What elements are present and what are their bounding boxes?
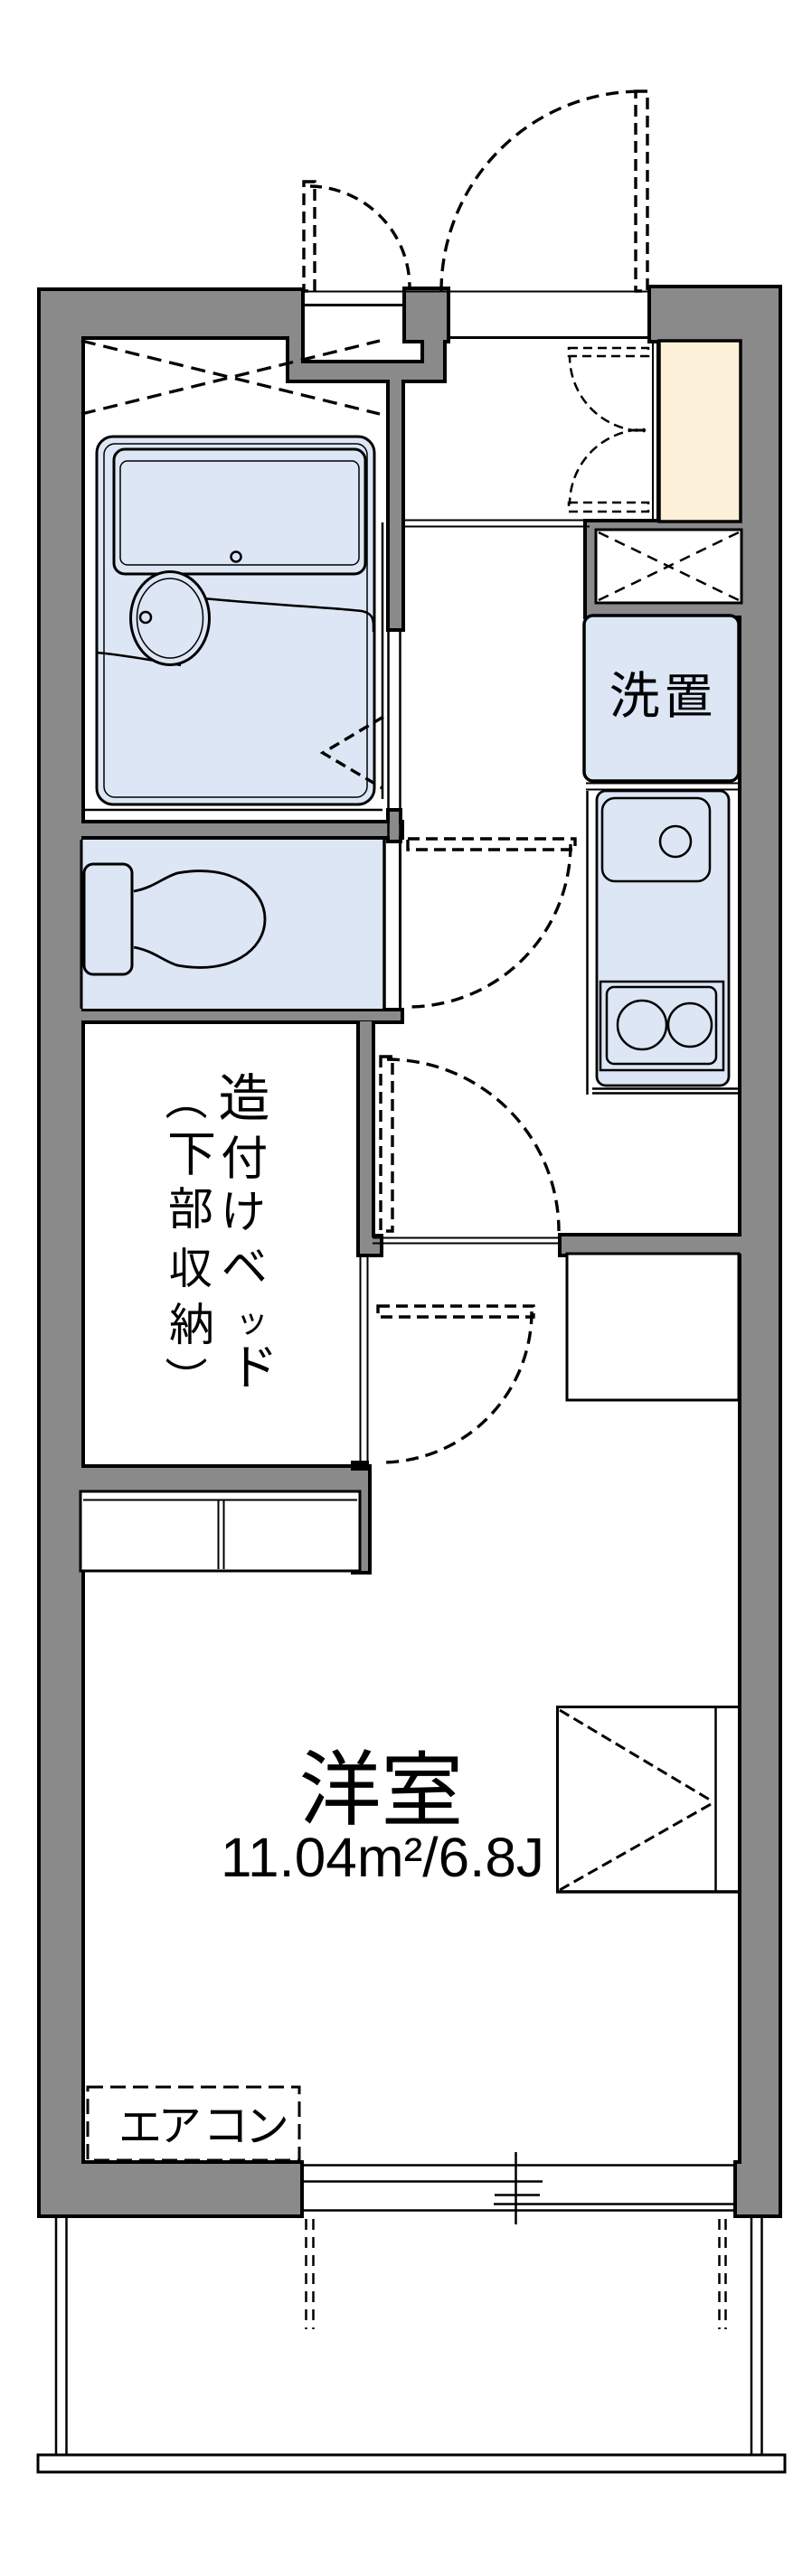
svg-text:11.04m²/6.8J: 11.04m²/6.8J xyxy=(221,1827,544,1888)
